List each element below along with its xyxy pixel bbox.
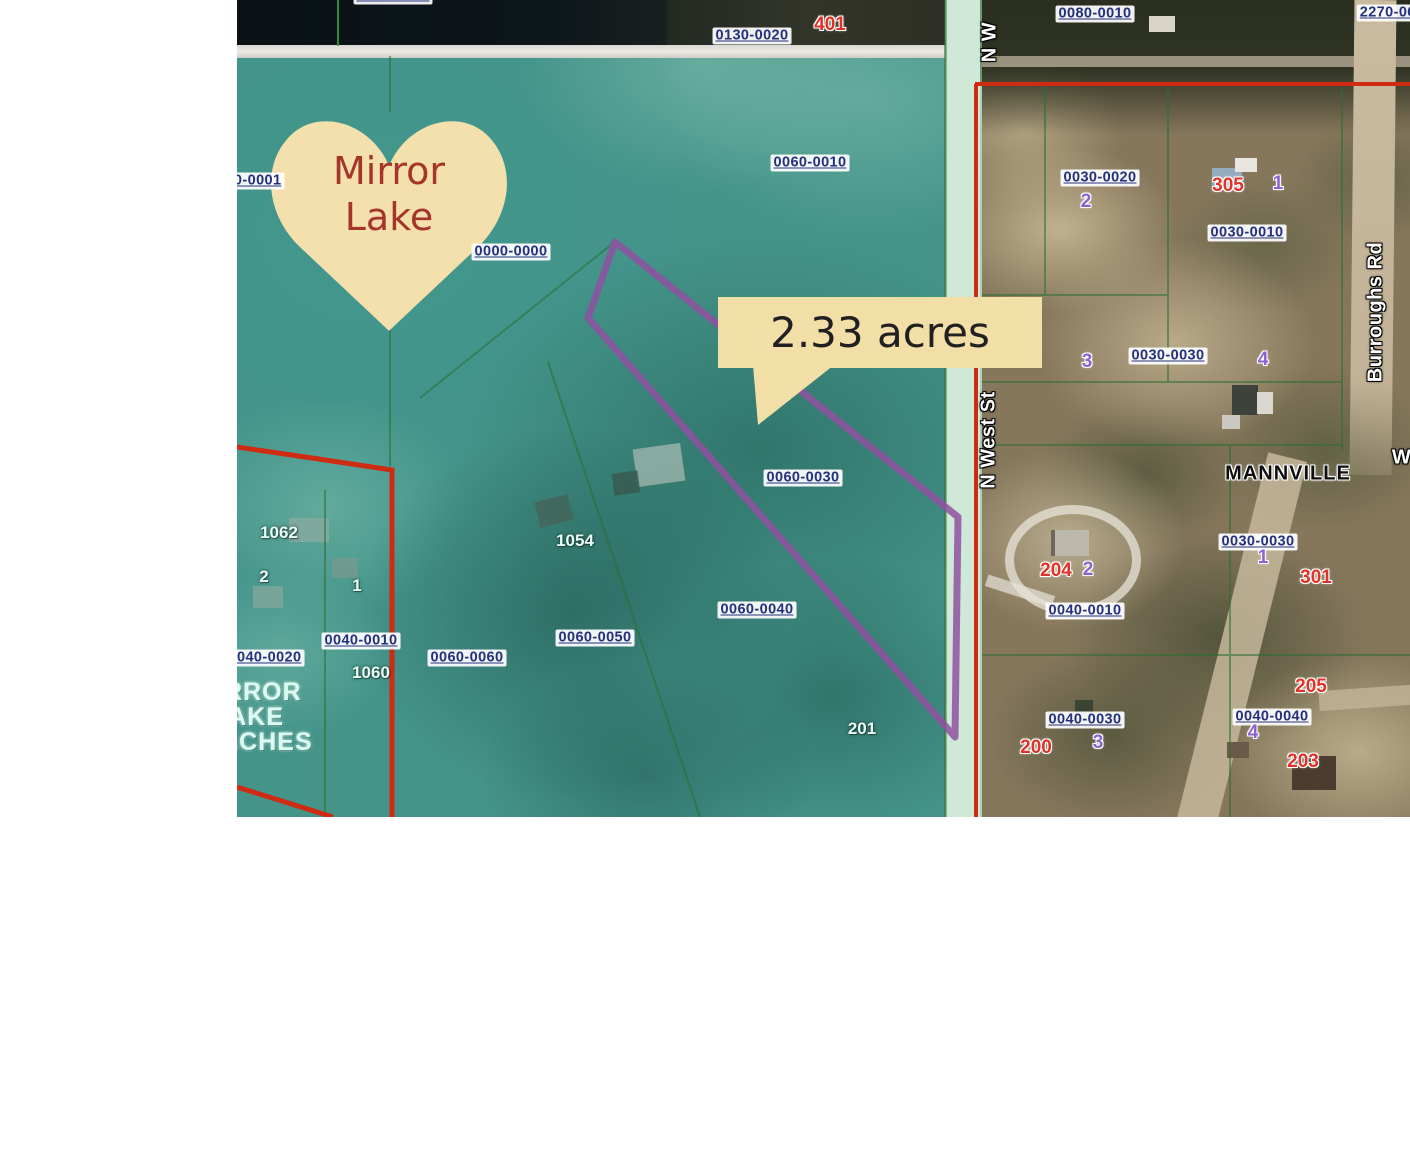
white-label: 1062 — [260, 523, 298, 543]
purple-label: 3 — [1082, 351, 1093, 373]
driveway-stem — [985, 574, 1055, 607]
street-label: Burroughs Rd — [1365, 242, 1388, 382]
parcel-label: 0080-0010 — [1056, 6, 1135, 23]
road-n-west-st — [945, 0, 982, 817]
acreage-callout: 2.33 acres — [718, 297, 1042, 368]
red-label: 301 — [1300, 567, 1332, 589]
lake-name-label: Mirror Lake — [259, 148, 519, 240]
white-label: 2 — [259, 567, 268, 587]
page-canvas: Mirror Lake MIRROR LAKE BEACHES 0130-000… — [0, 0, 1410, 1152]
purple-label: 1 — [1258, 547, 1269, 569]
road-spur — [1318, 685, 1410, 711]
green-parcel-lines — [325, 0, 1410, 817]
parcel-label: 0040-0030 — [1046, 712, 1125, 729]
building — [253, 586, 283, 608]
boundary-lines-overlay — [237, 0, 1410, 817]
red-label: 200 — [1020, 737, 1052, 759]
subdivision-line2: LAKE — [237, 705, 323, 730]
lake-name-line1: Mirror — [259, 148, 519, 194]
building — [633, 443, 686, 487]
parcel-label: 0000-0000 — [472, 244, 551, 261]
purple-label: 2 — [1083, 559, 1094, 581]
acreage-text: 2.33 acres — [770, 308, 990, 357]
white-label: 1060 — [352, 663, 390, 683]
lake-overlay-zone — [237, 0, 982, 817]
white-label: 201 — [848, 719, 876, 739]
parcel-label: 0030-0010 — [1208, 225, 1287, 242]
callout-tail — [742, 365, 842, 425]
building — [1227, 742, 1249, 758]
building — [1055, 530, 1089, 556]
parcel-label: 2270-060 — [1357, 5, 1410, 22]
parcel-label: 0040-0040 — [1233, 709, 1312, 726]
subdivision-label: MIRROR LAKE BEACHES — [237, 680, 323, 755]
circular-driveway — [1005, 505, 1141, 615]
parcel-label: 0130-0020 — [713, 28, 792, 45]
parcel-label: 0130-0000 — [354, 0, 433, 5]
parcel-label: 0060-0060 — [428, 650, 507, 667]
dark-trees-zone — [667, 0, 982, 47]
building — [289, 518, 329, 542]
parcel-label: 0030-0030 — [1219, 534, 1298, 551]
building — [1222, 415, 1240, 429]
purple-label: 3 — [1093, 732, 1104, 754]
road-top — [237, 45, 957, 58]
white-label: 1 — [352, 576, 361, 596]
building — [1075, 700, 1093, 713]
parcel-label: 0030-0030 — [1129, 348, 1208, 365]
building — [332, 558, 358, 578]
purple-label: 4 — [1258, 349, 1269, 371]
parcel-label: 0060-0050 — [556, 630, 635, 647]
red-label: 204 — [1040, 560, 1072, 582]
aerial-zone — [982, 0, 1410, 817]
dark-water-zone — [237, 0, 667, 47]
subdivision-line1: MIRROR — [237, 680, 323, 705]
building — [1257, 392, 1273, 414]
subdivision-line3: BEACHES — [237, 730, 323, 755]
aerial-map[interactable]: Mirror Lake MIRROR LAKE BEACHES 0130-000… — [237, 0, 1410, 817]
place-label: MANNVILLE — [1225, 463, 1351, 486]
building — [1235, 158, 1257, 172]
street-label: Wa — [1392, 447, 1410, 470]
building — [1149, 16, 1175, 32]
parcel-label: 0060-0030 — [764, 470, 843, 487]
red-label: 203 — [1287, 751, 1319, 773]
street-label: N W — [979, 22, 1002, 62]
purple-label: 2 — [1081, 191, 1092, 213]
purple-label: 4 — [1248, 722, 1259, 744]
parcel-label: 0040-0010 — [1046, 603, 1125, 620]
road-top-right — [982, 56, 1410, 67]
street-label: N West St — [978, 391, 1001, 488]
white-label: 1054 — [556, 531, 594, 551]
red-label: 305 — [1212, 175, 1244, 197]
red-label: 401 — [814, 14, 846, 36]
parcel-label: 0030-0020 — [1061, 170, 1140, 187]
building — [612, 470, 641, 495]
purple-label: 1 — [1273, 173, 1284, 195]
parcel-label: 0060-0010 — [771, 155, 850, 172]
building — [534, 494, 573, 527]
building — [1232, 385, 1258, 415]
road-diagonal — [1174, 452, 1307, 817]
lake-name-line2: Lake — [259, 194, 519, 240]
building — [1292, 756, 1336, 790]
road-burroughs — [1350, 0, 1397, 475]
parcel-label: 0060-0040 — [718, 602, 797, 619]
parcel-label: 0040-0020 — [237, 650, 304, 667]
red-label: 205 — [1295, 676, 1327, 698]
building — [1212, 168, 1242, 190]
parcel-label: 0040-0010 — [322, 633, 401, 650]
